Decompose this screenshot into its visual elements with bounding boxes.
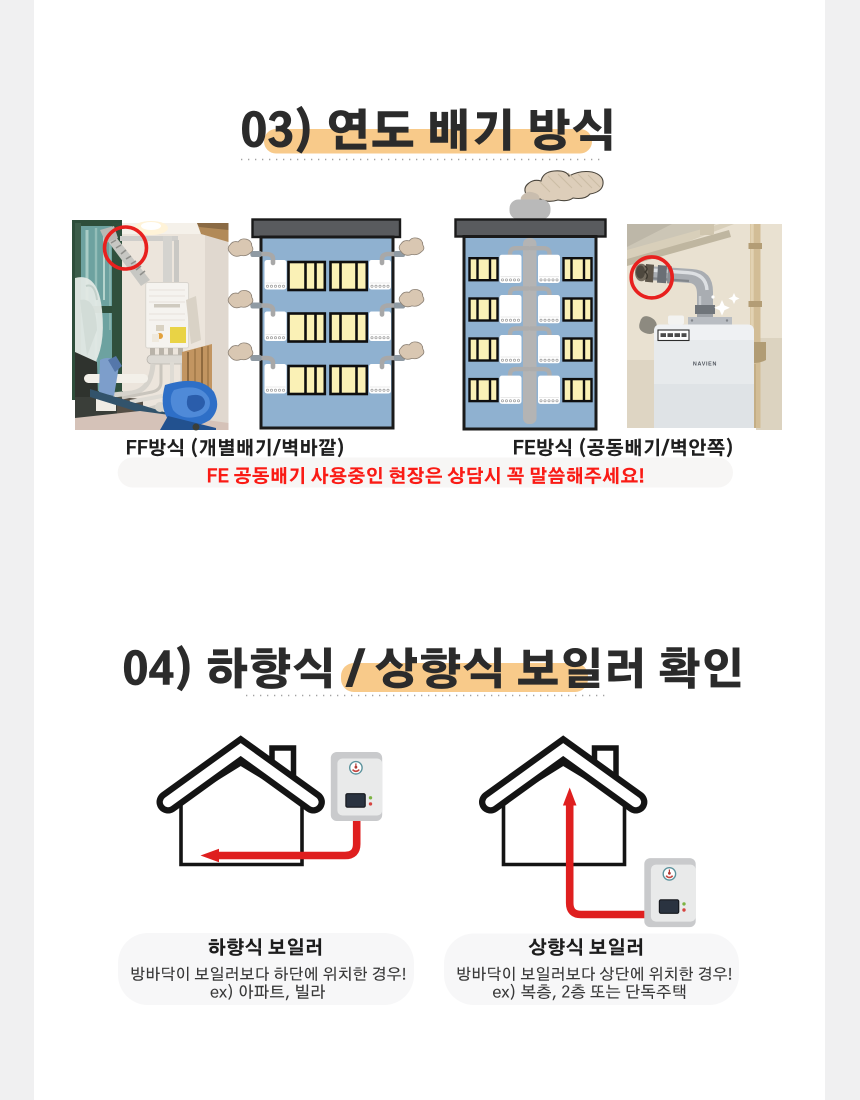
svg-text:NAVIEN: NAVIEN xyxy=(693,362,717,368)
